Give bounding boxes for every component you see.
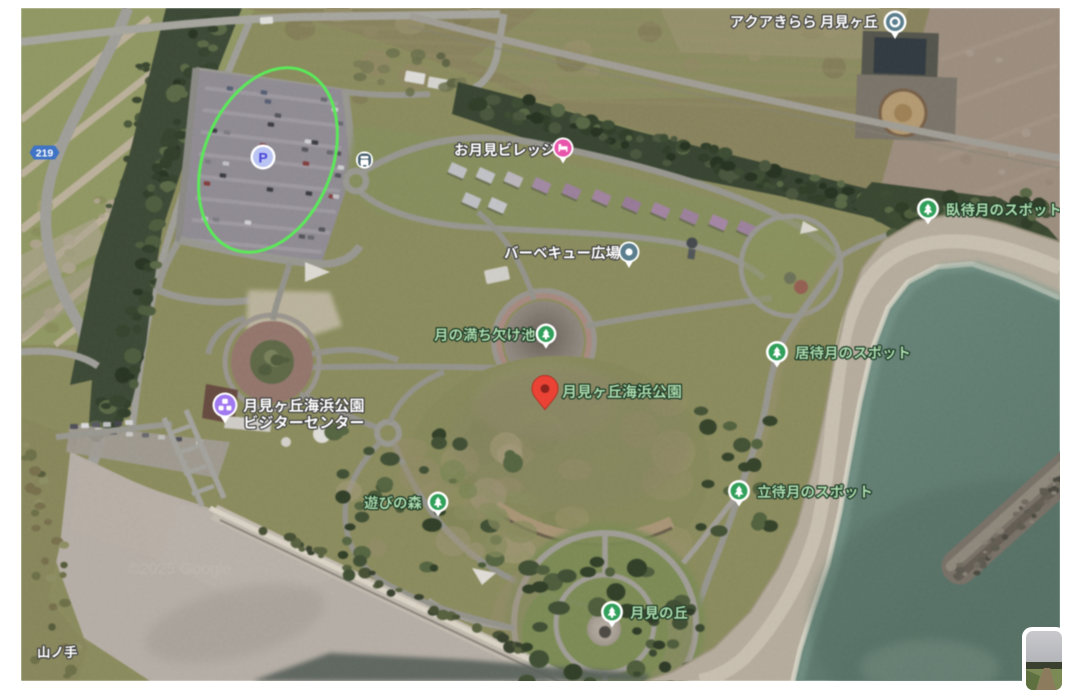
svg-text:P: P [258,150,267,166]
svg-text:219: 219 [36,148,54,160]
